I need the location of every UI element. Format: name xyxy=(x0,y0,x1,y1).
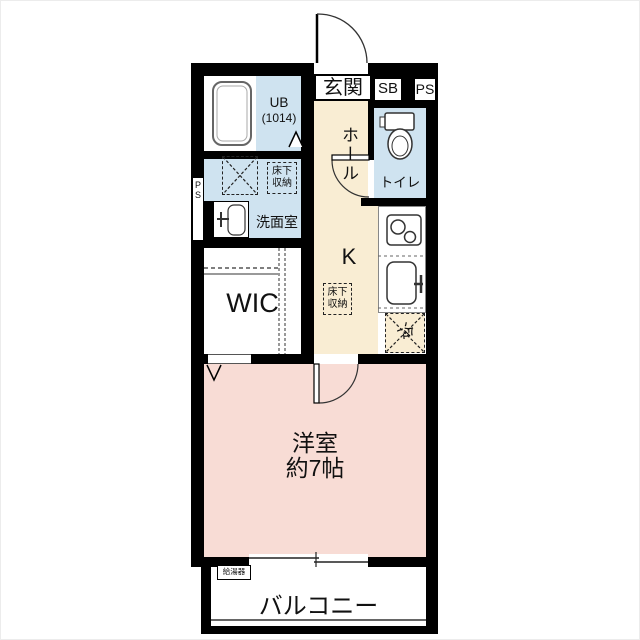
balcony-label: バルコニー xyxy=(211,586,426,621)
refrigerator-label: 冷 xyxy=(385,313,425,353)
washing-machine-space-icon xyxy=(223,157,257,194)
water-heater-label: 給湯器 xyxy=(217,565,251,579)
room-door-arc xyxy=(314,364,358,403)
floor-plan-page: 玄関 SB PS UB (1014) ホール トイレ 床下 収納 洗面室 P S… xyxy=(0,0,640,640)
kitchen-label: K xyxy=(324,244,374,270)
entrance-door-arc xyxy=(317,14,367,63)
kitchen-sink-icon xyxy=(387,262,423,304)
refrigerator-char: 冷 xyxy=(385,313,425,353)
ps-left-line2: S xyxy=(195,190,201,200)
hall-label: ホール xyxy=(336,109,361,199)
washroom-label: 洗面室 xyxy=(251,212,303,232)
toilet-icon xyxy=(380,113,414,159)
unit-bath-label-line1: UB xyxy=(270,95,289,110)
western-room-line2: 約7帖 xyxy=(286,455,345,481)
ufs-washroom-line1: 床下 xyxy=(272,166,292,177)
western-room-label: 洋室 約7帖 xyxy=(204,431,426,481)
western-room-line1: 洋室 xyxy=(292,430,338,456)
ufs-kitchen-line2: 収納 xyxy=(328,299,348,310)
vanity-sink-icon xyxy=(217,205,245,235)
ps-left-line1: P xyxy=(195,180,201,190)
ufs-kitchen-line1: 床下 xyxy=(328,287,348,298)
unit-bath-label: UB (1014) xyxy=(253,95,305,126)
underfloor-storage-washroom-label: 床下 収納 xyxy=(267,166,297,190)
entrance-label: 玄関 xyxy=(314,76,372,100)
bathtub-icon xyxy=(213,82,251,145)
stove-icon xyxy=(387,215,421,245)
sliding-window-icon xyxy=(249,552,368,567)
wic-door-mark xyxy=(207,365,221,380)
ufs-washroom-line2: 収納 xyxy=(272,178,292,189)
unit-bath-label-line2: (1014) xyxy=(262,111,297,125)
toilet-label: トイレ xyxy=(374,171,426,191)
shoe-box-label: SB xyxy=(373,77,403,101)
pipe-space-left-label: P S xyxy=(192,181,204,200)
underfloor-storage-kitchen-label: 床下 収納 xyxy=(323,287,352,311)
wic-label: WIC xyxy=(204,288,301,319)
ub-door-mark xyxy=(289,132,303,147)
pipe-space-top-label: PS xyxy=(413,77,437,101)
